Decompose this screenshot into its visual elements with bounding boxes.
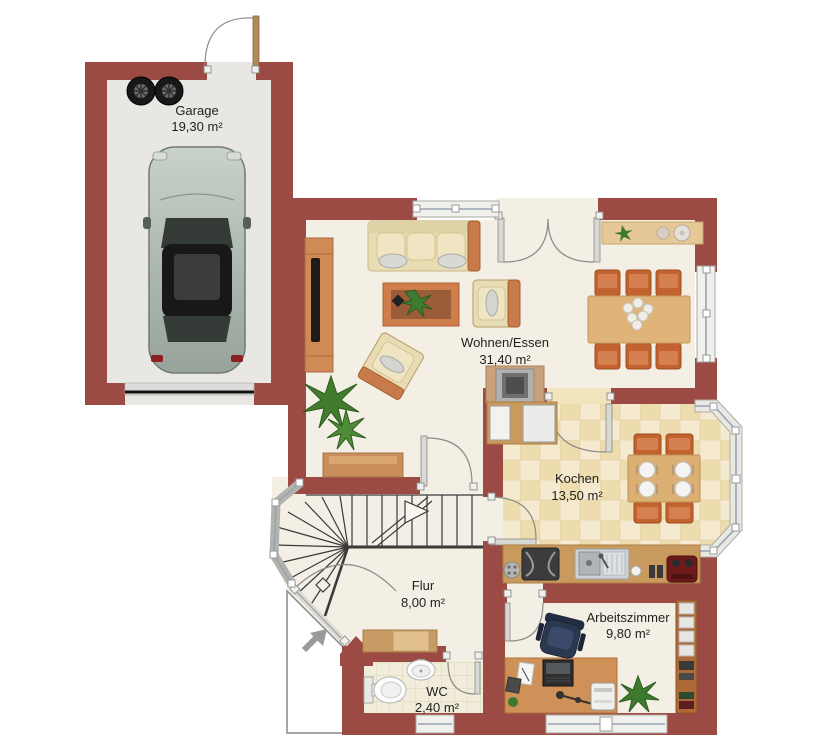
floor-plan-canvas: Garage 19,30 m² Wohnen/Essen 31,40 m² Ko… — [0, 0, 829, 755]
bookshelf — [676, 600, 697, 713]
dining-set — [588, 270, 690, 369]
fridge — [490, 406, 510, 440]
room-label-kitchen-name: Kochen — [555, 471, 599, 486]
desk-plant-icon — [508, 697, 518, 707]
room-label-living-area: 31,40 m² — [479, 352, 531, 367]
room-label-living-name: Wohnen/Essen — [461, 335, 549, 350]
sideboard-hall — [363, 630, 437, 652]
sideboard-dining — [602, 222, 703, 244]
room-label-study-area: 9,80 m² — [606, 626, 651, 641]
armchair-right — [473, 280, 520, 327]
garage-door — [125, 383, 254, 395]
laptop — [543, 660, 573, 686]
tv-lowboard — [305, 238, 333, 372]
window-wc — [416, 715, 454, 733]
coffee-machine — [667, 556, 697, 582]
room-label-hall-name: Flur — [412, 578, 435, 593]
window-dining-east — [697, 266, 715, 362]
phone-icon — [506, 677, 521, 693]
sideboard-stairs — [323, 453, 403, 477]
room-label-wc-name: WC — [426, 684, 448, 699]
spice-rack-icon — [504, 562, 520, 578]
room-label-wc-area: 2,40 m² — [415, 700, 460, 715]
tv-icon — [311, 258, 320, 342]
room-label-garage-area: 19,30 m² — [171, 119, 223, 134]
oven — [523, 405, 555, 442]
car — [143, 147, 251, 373]
kitchen-counter-top-left — [487, 402, 557, 444]
room-label-hall-area: 8,00 m² — [401, 595, 446, 610]
bowl-icon — [631, 566, 641, 576]
sink — [575, 549, 629, 579]
sofa — [368, 221, 480, 271]
door-garage-entry — [205, 16, 259, 66]
printer — [591, 683, 615, 710]
window-study — [546, 715, 667, 733]
room-label-study-name: Arbeitszimmer — [586, 610, 670, 625]
room-label-kitchen-area: 13,50 m² — [551, 488, 603, 503]
floor-plan: Garage 19,30 m² Wohnen/Essen 31,40 m² Ko… — [0, 0, 829, 755]
window-living-top — [413, 201, 499, 217]
kitchen-counter-bottom — [503, 545, 700, 583]
room-label-garage-name: Garage — [175, 103, 218, 118]
kitchen-table — [628, 455, 700, 502]
bottle-icon-2 — [657, 565, 663, 578]
bottle-icon — [649, 565, 655, 578]
toilet — [364, 677, 406, 703]
fireplace-stove — [486, 366, 544, 404]
coffee-table — [383, 283, 459, 326]
stove-cooktop — [522, 548, 559, 580]
